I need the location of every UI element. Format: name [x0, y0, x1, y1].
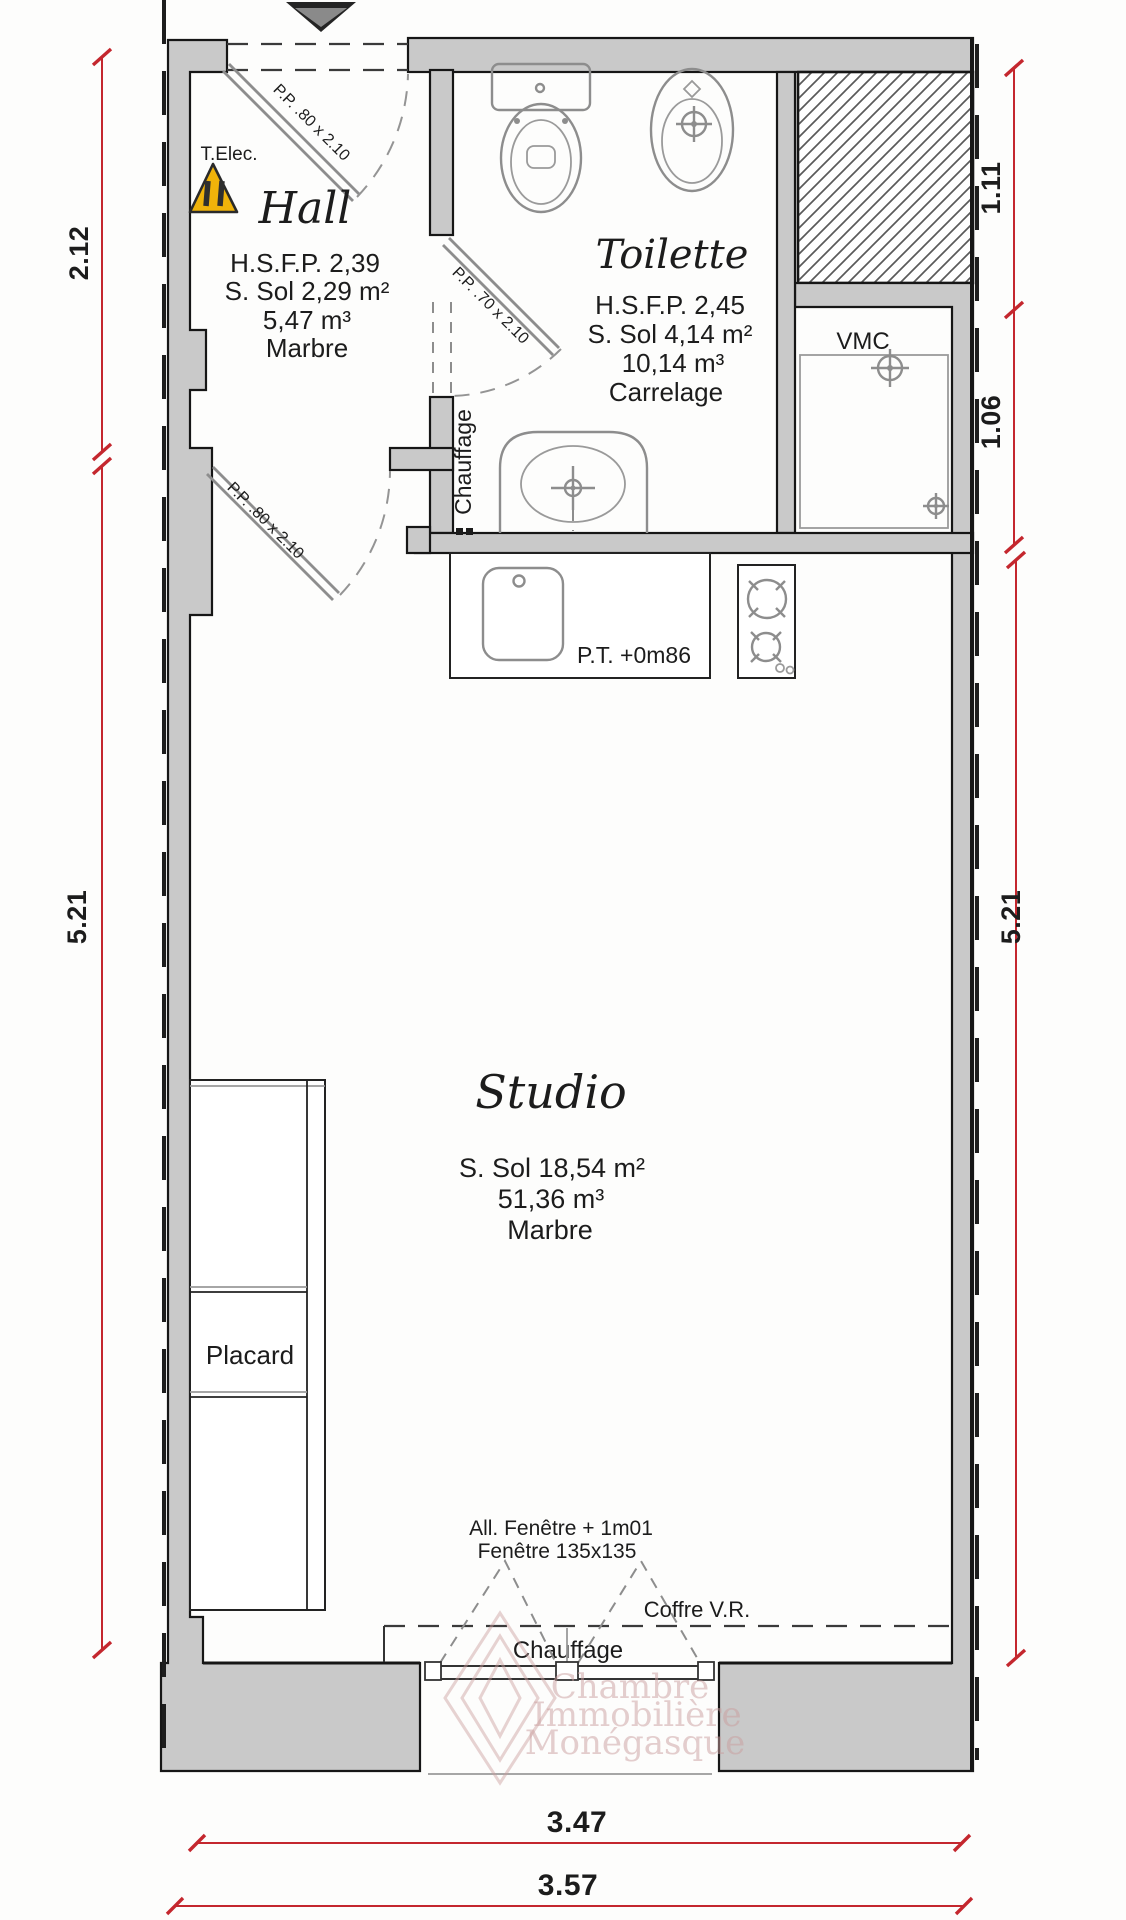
placard-label: Placard — [206, 1340, 294, 1370]
toilette-bottom-wall-notch — [407, 527, 430, 553]
drain-icon — [923, 493, 949, 519]
entrance-door: P.P. .80 x 2.10 — [223, 64, 408, 201]
svg-text:3.47: 3.47 — [547, 1806, 607, 1839]
cooktop-icon — [738, 565, 795, 678]
hall-volume: 5,47 m³ — [263, 305, 351, 335]
hall-bottom-wall-stub — [390, 448, 453, 470]
hall-floor-finish: Marbre — [266, 333, 348, 363]
wc-icon — [492, 64, 590, 212]
toilette-floor-finish: Carrelage — [609, 377, 723, 407]
shower-tray-outline — [800, 355, 948, 528]
floor-plan-drawing: P.P. .80 x 2.10 P.P. .70 x 2.10 P.P. .80… — [0, 0, 1126, 1920]
entrance-arrow-icon — [286, 2, 356, 32]
dimension-bottom-outer: 3.57 — [167, 1869, 972, 1914]
warning-triangle-icon — [190, 164, 237, 212]
placard-closet: Placard — [190, 1080, 325, 1610]
hall-ceiling-height: H.S.F.P. 2,39 — [230, 248, 380, 278]
worktop-label: P.T. +0m86 — [577, 642, 691, 668]
toilette-ceiling-height: H.S.F.P. 2,45 — [595, 290, 745, 320]
studio-floor-finish: Marbre — [507, 1215, 593, 1245]
toilette-title: Toilette — [596, 232, 749, 278]
coffre-label: Coffre V.R. — [644, 1597, 750, 1622]
window-sill-label: All. Fenêtre + 1m01 — [469, 1517, 653, 1540]
hall-room: T.Elec. Hall H.S.F.P. 2,39 S. Sol 2,29 m… — [190, 144, 390, 363]
kitchenette: P.T. +0m86 — [450, 553, 795, 678]
watermark-line3: Monégasque — [525, 1723, 746, 1763]
entrance-door-label: P.P. .80 x 2.10 — [270, 81, 353, 164]
studio-surface: S. Sol 18,54 m² — [459, 1153, 645, 1183]
toilette-door: P.P. .70 x 2.10 — [433, 238, 561, 396]
toilette-left-wall-upper — [430, 70, 453, 235]
chauffage-toilette-label: Chauffage — [450, 409, 476, 515]
dimension-right-mid: 1.06 — [976, 395, 1006, 450]
studio-door: P.P. .80 x 2.10 — [207, 467, 390, 600]
vmc-area: VMC — [800, 328, 949, 528]
toilette-vmc-divider-wall — [777, 72, 795, 533]
svg-text:2.12: 2.12 — [64, 226, 94, 281]
duct-hatch — [798, 72, 973, 283]
svg-text:5.21: 5.21 — [996, 890, 1026, 945]
hall-title: Hall — [258, 183, 352, 234]
washbasin-icon — [500, 432, 647, 533]
svg-text:1.11: 1.11 — [976, 161, 1006, 214]
window-size-label: Fenêtre 135x135 — [478, 1540, 637, 1563]
studio-door-label: P.P. .80 x 2.10 — [224, 479, 307, 562]
dimension-left-studio: 5.21 — [62, 458, 111, 1658]
hall-surface: S. Sol 2,29 m² — [225, 276, 390, 306]
toilette-door-label: P.P. .70 x 2.10 — [449, 264, 532, 347]
t-elec-label: T.Elec. — [200, 144, 257, 165]
toilette-bottom-wall — [415, 533, 973, 553]
dimension-bottom-inner: 3.47 — [189, 1806, 970, 1851]
floor-plan-page: P.P. .80 x 2.10 P.P. .70 x 2.10 P.P. .80… — [0, 0, 1126, 1920]
dimension-right-studio: 5.21 — [996, 552, 1026, 1666]
dimension-left-hall: 2.12 — [64, 49, 111, 460]
bidet-icon — [651, 69, 733, 191]
toilette-volume: 10,14 m³ — [622, 348, 725, 378]
dimension-right-upper: 1.11 1.06 — [976, 60, 1023, 553]
svg-text:5.21: 5.21 — [62, 890, 92, 945]
studio-volume: 51,36 m³ — [498, 1184, 605, 1214]
svg-text:3.57: 3.57 — [538, 1869, 598, 1902]
studio-title: Studio — [475, 1065, 626, 1119]
doors: P.P. .80 x 2.10 P.P. .70 x 2.10 P.P. .80… — [207, 64, 561, 600]
vmc-label: VMC — [836, 328, 889, 355]
toilette-surface: S. Sol 4,14 m² — [588, 319, 753, 349]
